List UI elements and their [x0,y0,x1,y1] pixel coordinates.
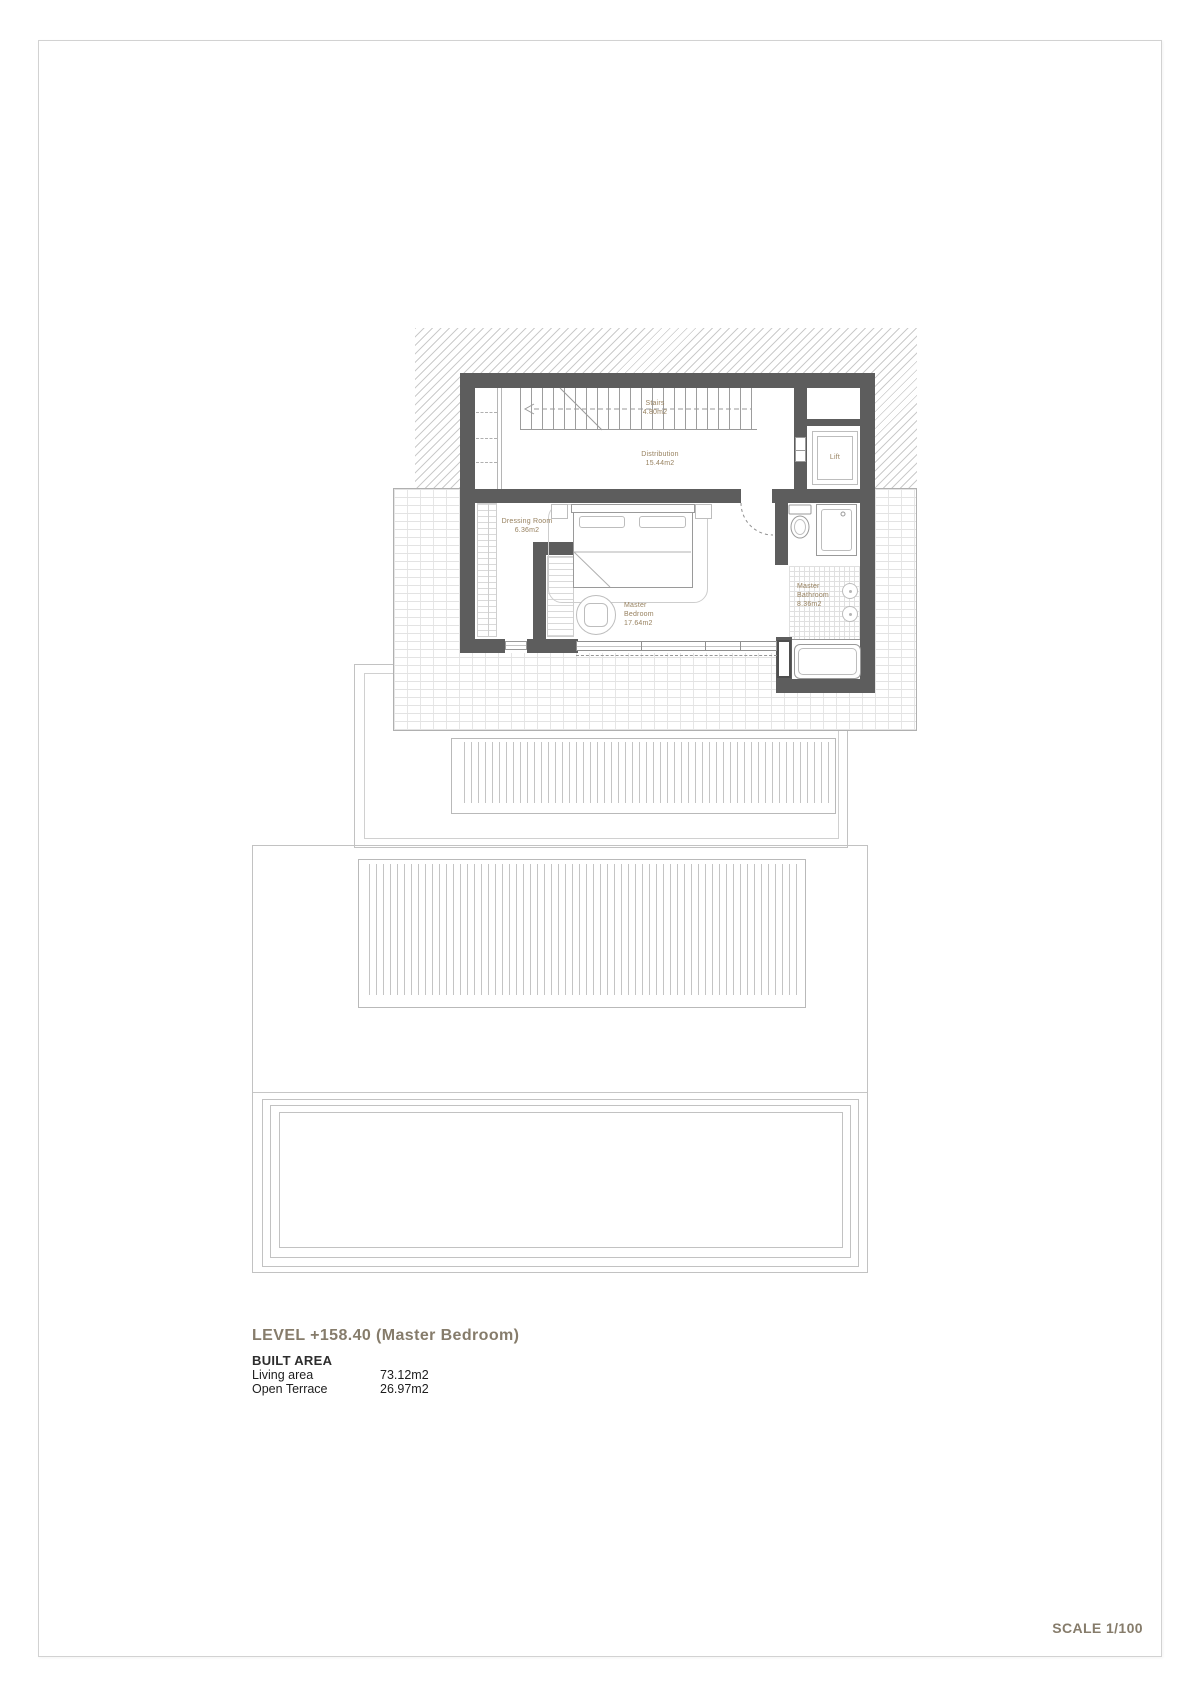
room-name: Dressing Room [475,517,579,526]
shower-drain [841,512,845,516]
room-name: Bathroom [797,591,857,600]
room-area: 8.36m2 [797,600,857,609]
room-area: 4.80m2 [615,408,695,417]
lower-terrace [252,845,868,1273]
level-title: LEVEL +158.40 (Master Bedroom) [252,1327,812,1345]
room-label-distribution: Distribution 15.44m2 [610,450,710,468]
room-label-master-bedroom: Master Bedroom 17.64m2 [624,601,684,628]
terrace-step [279,1112,843,1248]
room-name: Master [624,601,684,610]
area-value: 26.97m2 [380,1382,429,1396]
area-label: Open Terrace [252,1382,328,1396]
room-name: Bedroom [624,610,684,619]
area-value: 73.12m2 [380,1368,429,1382]
terrace-edge-line [253,1092,867,1093]
deck-planks [369,864,797,995]
room-label-lift: Lift [812,453,858,462]
scale-note: SCALE 1/100 [1000,1620,1143,1636]
door-swing-arc [741,503,773,535]
room-area: 17.64m2 [624,619,684,628]
room-name: Stairs [615,399,695,408]
area-label: Living area [252,1368,313,1382]
plan-linework [350,320,930,740]
terrace-deck-lower [358,859,806,1008]
area-row: Living area 73.12m2 [252,1368,552,1382]
room-area: 15.44m2 [610,459,710,468]
toilet [789,505,811,538]
room-label-dressing-room: Dressing Room 6.36m2 [475,517,579,535]
room-label-master-bathroom: Master Bathroom 8.36m2 [797,582,857,609]
room-name: Lift [812,453,858,462]
room-label-stairs: Stairs 4.80m2 [615,399,695,417]
deck-planks [464,742,829,803]
area-row: Open Terrace 26.97m2 [252,1382,552,1396]
room-name: Distribution [610,450,710,459]
terrace-deck-upper [451,738,836,814]
built-area-heading: BUILT AREA [252,1353,552,1368]
room-name: Master [797,582,857,591]
room-area: 6.36m2 [475,526,579,535]
bed-blanket-fold [574,552,691,587]
